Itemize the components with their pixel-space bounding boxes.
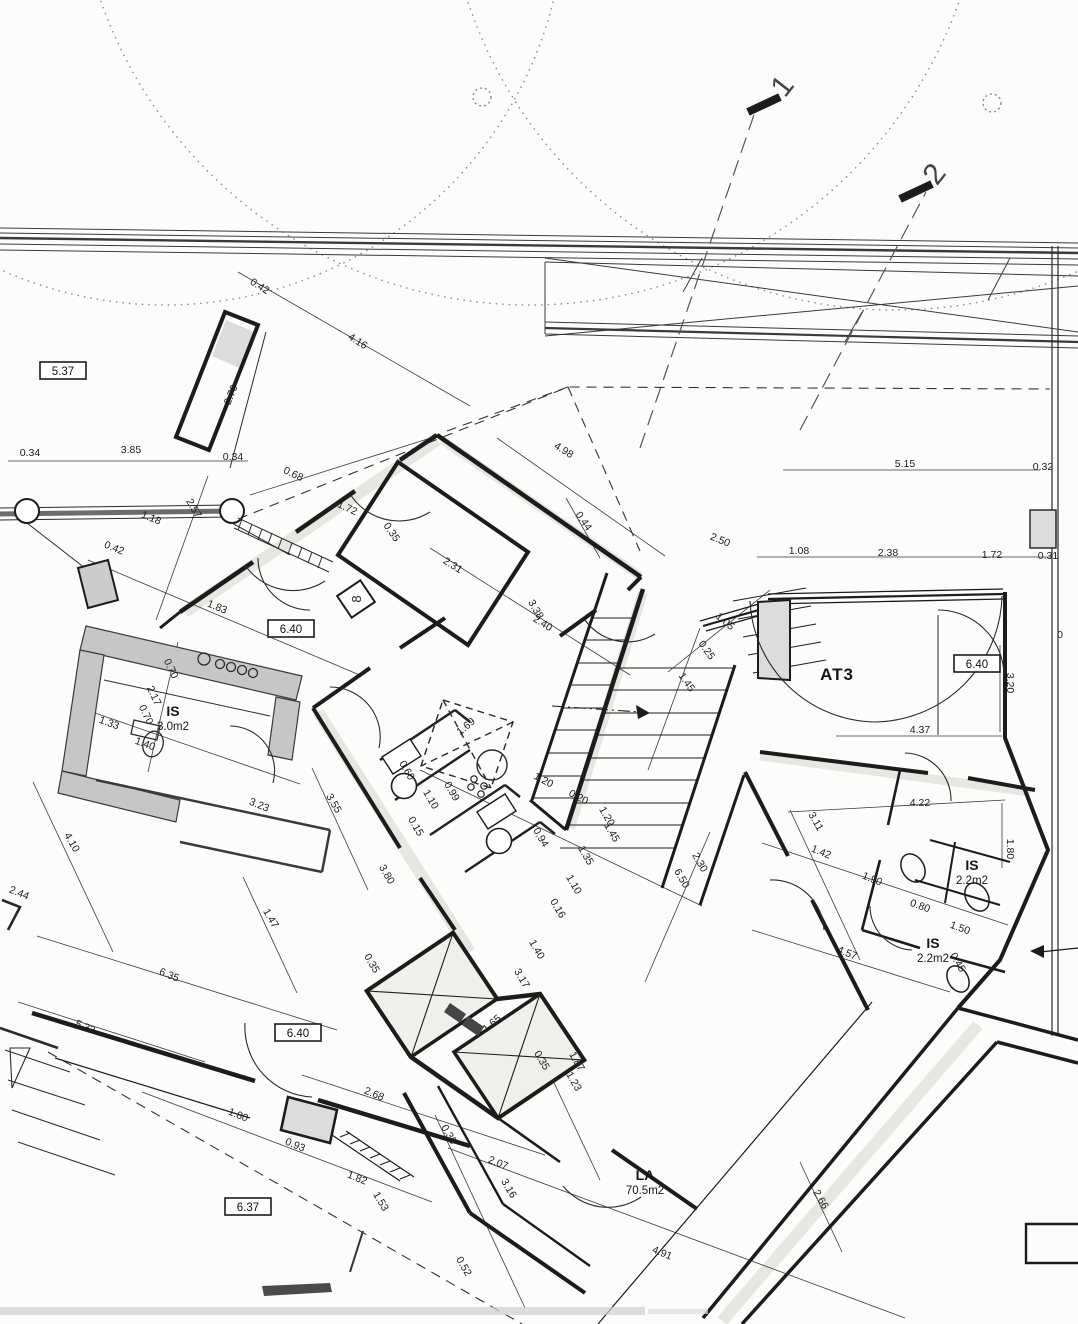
dimension-label: 6.50 [671,867,692,891]
room-name: IS [166,703,179,719]
dimension-label: 2.68 [362,1085,386,1104]
room-label-is-annex: IS 3.0m2 [157,703,189,733]
room-name: AT3 [820,665,854,684]
pipe-icon [471,776,477,782]
dimension-label: 0.35 [381,520,403,544]
property-boundary-right [1030,246,1058,1036]
dimension-label: 0.52 [453,1255,474,1279]
dimension-label: 2.70 [222,383,241,407]
dimension-label: 2.38 [878,547,899,559]
dimension-label: 3.11 [805,810,825,833]
dimension-label: 1.40 [526,938,547,962]
dimension-label: 3.17 [511,967,532,991]
room-area: 3.0m2 [157,721,189,733]
scan-band [0,1307,645,1315]
dimension-label: 1.80 [226,1106,250,1125]
dimension-label: 0.35 [361,952,382,976]
dimension-label: 0.93 [283,1136,307,1155]
dimension-label: 4.91 [650,1244,674,1263]
shaft-circle-icon [477,750,507,780]
dimension-label: 1.50 [948,919,971,937]
dimension-label: 1.08 [789,545,810,557]
dimension-label: 1.45 [601,821,622,845]
dimension-label: 0.16 [547,897,568,921]
section-tick [748,97,780,112]
dimension-label: 2.50 [708,531,732,550]
scan-shading [185,440,1030,1321]
room-label-is-1: IS 2.2m2 [956,857,988,887]
small-dotted-circle-icon [983,94,1001,112]
room-label-at3: AT3 [820,665,854,684]
floor-plan-drawing: 1 2 [0,0,1078,1324]
dimension-label: 1.53 [370,1190,391,1214]
tree-canopy-icon [75,0,985,305]
garage-ramp [598,945,1078,1324]
dimension-label: 0.15 [405,815,426,839]
dimension-label: 3.80 [376,863,397,887]
site-hatch-bottom-left [0,900,115,1175]
level-box-label: 6.40 [287,1028,309,1040]
legend-box-partial [1026,1224,1078,1263]
door-tag: 8 [337,580,375,617]
dimension-label: 5.32 [73,1018,97,1037]
wc-icon [896,850,930,887]
dimension-label: 0 [1057,629,1063,641]
floor-plan-page: 1 2 [0,0,1078,1324]
room-area: 2.2m2 [917,953,949,965]
railing-post-icon [15,499,39,523]
room-label-is-2: IS 2.2m2 [917,935,949,965]
door-tag-number: 8 [349,595,364,602]
dimension-label: 6.35 [157,966,181,985]
dimension-label: 0.80 [908,897,931,915]
room-name: LA [636,1167,655,1183]
level-box-label: 6.37 [237,1202,259,1214]
dimension-label: 2.07 [486,1154,510,1173]
stair-walkline [552,706,640,712]
wc-icon [487,829,512,854]
dimension-label: 5.15 [895,458,916,470]
dimension-label: 1.23 [563,1070,584,1094]
section-tick [900,184,932,199]
planter-box [176,312,266,468]
walkline-arrow-icon [636,705,650,719]
dimension-label: 3.20 [1004,673,1016,694]
dimension-label: 1.33 [97,714,120,732]
dimension-label: 0.34 [20,447,41,459]
room-area: 2.2m2 [956,875,988,887]
dimension-label: 4.16 [346,331,370,352]
dimension-label: 1.82 [345,1169,369,1188]
ramp-arrow-icon [1030,945,1044,958]
room-name: IS [926,935,939,951]
la-wing-walls [32,1013,697,1293]
scan-blob [262,1283,332,1296]
dimension-label: 1.35 [575,844,596,868]
elevator-shafts [367,933,584,1118]
dimension-label: 0.25 [696,638,718,662]
dimension-label: 1.40 [133,735,156,753]
dimension-label: 2.40 [531,613,555,634]
dimension-label: 1.45 [676,670,698,694]
dimension-label: 1.10 [420,788,441,812]
dimension-label: 1.83 [205,598,229,617]
dimension-label: 0.34 [223,451,244,463]
dimension-label: 0.32 [1033,461,1054,473]
dimension-label: 3.55 [323,792,344,816]
dimension-label: 4.22 [910,797,931,809]
section-line [640,106,757,448]
column [78,560,118,608]
small-dotted-circle-icon [473,88,491,106]
tree-canopy-dotted-arcs [0,0,1078,310]
dimension-label: 1.05 [713,611,736,633]
road-lines [0,228,1078,348]
section-line [800,192,926,430]
dimension-label: 0.42 [102,539,126,558]
dimension-label: 4.37 [910,724,931,736]
tree-canopy-icon [0,0,565,305]
room-name: IS [965,857,978,873]
dimension-label: 2.44 [7,884,31,903]
dimension-label: 2.31 [441,555,465,576]
section-marker-2: 2 [800,157,953,430]
dimension-label: 4.10 [61,831,82,855]
section-marker-1: 1 [640,69,801,448]
dimension-label: 1.72 [982,549,1003,561]
dimension-label: 1.47 [260,907,281,931]
is-cluster-fixtures [896,850,994,997]
annex-walls [58,626,330,872]
at3-wing [700,589,1048,1008]
level-box-label: 6.40 [966,659,988,671]
dimension-label: 4.98 [552,440,576,461]
dimension-label: 0.31 [1038,550,1059,562]
dimension-label: 3.16 [498,1177,519,1201]
dimension-label: 1.80 [1004,839,1016,860]
dimension-label: 2.30 [689,851,710,875]
dimension-label: 1.10 [563,873,584,897]
dimension-label: 0.42 [248,276,272,297]
dashed-setback-lines [48,387,1050,1324]
room-area: 70.5m2 [626,1185,664,1197]
level-box-label: 6.40 [280,624,302,636]
level-box-label: 5.37 [52,366,74,378]
boundary-pier [1030,510,1056,548]
dimension-label: 0.99 [441,780,462,804]
dimension-label: 3.85 [121,444,142,456]
scan-artifacts [0,1224,1078,1315]
dimension-label: 1.69 [454,715,477,737]
